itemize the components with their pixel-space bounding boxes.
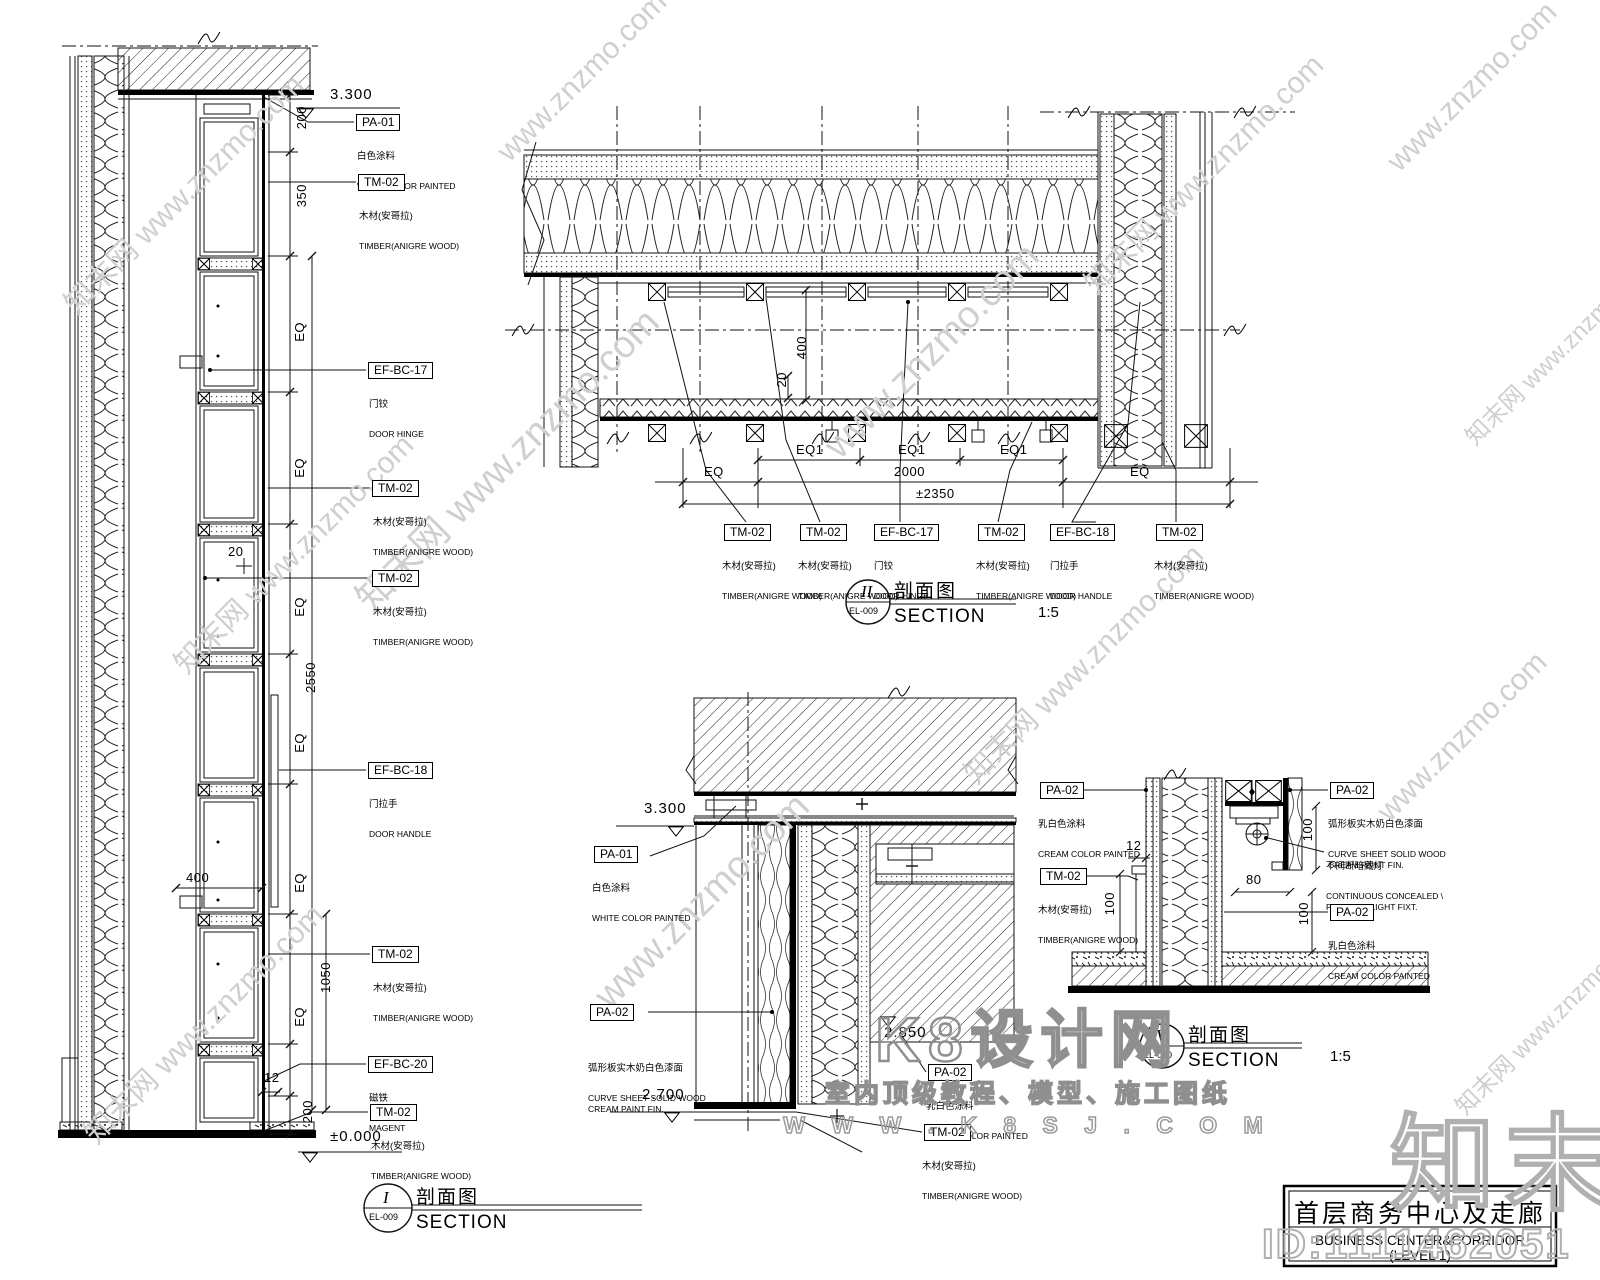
material-note-zh: 木材(安哥拉) <box>1154 562 1254 573</box>
watermark-k8-subtitle: 室内顶级教程、模型、施工图纸 <box>758 1074 1298 1110</box>
material-tag: TM-02 <box>800 524 847 541</box>
material-note-en: TIMBER(ANIGRE WOOD) <box>373 637 473 648</box>
material-note-zh: 门拉手 <box>369 800 431 811</box>
material-note-zh: 乳白色涂料 <box>1038 820 1140 831</box>
material-note-zh: 乳白色涂料 <box>1328 942 1430 953</box>
material-tag: EF-BC-17 <box>368 362 433 379</box>
material-note: 门拉手 DOOR HANDLE <box>369 782 431 858</box>
dim: EQ <box>704 464 724 479</box>
material-note: 门铰 DOOR HINGE <box>369 382 424 458</box>
material-note: 木材(安哥拉) TIMBER(ANIGRE WOOD) <box>1154 544 1254 620</box>
material-note-en: TIMBER(ANIGRE WOOD) <box>922 1191 1022 1202</box>
material-note: 门拉手 DOOR HANDLE <box>1050 544 1112 620</box>
section-title-cn: 剖面图 <box>894 576 957 603</box>
material-note-zh: 木材(安哥拉) <box>922 1162 1022 1173</box>
material-tag: TM-02 <box>358 174 405 191</box>
material-note-en: TIMBER(ANIGRE WOOD) <box>1154 591 1254 602</box>
material-note-en: DOOR HANDLE <box>369 829 431 840</box>
material-note-zh: 不间断暗藏灯 <box>1326 862 1443 873</box>
material-note-en: TIMBER(ANIGRE WOOD) <box>359 241 459 252</box>
watermark-zhimo: 知末 <box>1390 1080 1600 1232</box>
dim: 20 <box>774 372 789 387</box>
material-note: 木材(安哥拉) TIMBER(ANIGRE WOOD) <box>373 966 473 1042</box>
material-note: 木材(安哥拉) TIMBER(ANIGRE WOOD) <box>359 194 459 270</box>
material-tag: PA-02 <box>1330 782 1374 799</box>
watermark-k8-block: K8设计网 室内顶级教程、模型、施工图纸 W W W . K 8 S J . C… <box>758 1010 1298 1139</box>
section-sheet: EL-009 <box>849 606 878 616</box>
dim: EQ <box>292 458 307 478</box>
material-tag: PA-02 <box>1040 782 1084 799</box>
material-tag: EF-BC-17 <box>874 524 939 541</box>
dim: 100 <box>1300 818 1315 841</box>
material-note-en: DOOR HINGE <box>369 429 424 440</box>
material-tag: TM-02 <box>372 480 419 497</box>
section-title-en: SECTION <box>416 1212 507 1234</box>
dim: 2550 <box>303 662 318 693</box>
material-note-zh: 门拉手 <box>1050 562 1112 573</box>
material-note-en: TIMBER(ANIGRE WOOD) <box>371 1171 471 1182</box>
material-note-zh: 木材(安哥拉) <box>1038 906 1138 917</box>
dim: EQ <box>292 322 307 342</box>
watermark-id: ID:1111462051 <box>1262 1220 1571 1268</box>
material-note-en: TIMBER(ANIGRE WOOD) <box>1038 935 1138 946</box>
material-note-zh: 木材(安哥拉) <box>373 518 473 529</box>
section-number: II <box>861 582 872 602</box>
dim: 200 <box>294 106 309 129</box>
dim: 1050 <box>318 962 333 993</box>
material-note-zh: 木材(安哥拉) <box>359 212 459 223</box>
material-note-en: DOOR HANDLE <box>1050 591 1112 602</box>
level-mark: 3.300 <box>644 800 687 817</box>
material-note: 木材(安哥拉) TIMBER(ANIGRE WOOD) <box>373 590 473 666</box>
material-note-en: CURVE SHEET SOLID WOOD CREAM PAINT FIN. <box>588 1093 706 1114</box>
dim: 2000 <box>894 464 925 479</box>
material-note-zh: 白色涂料 <box>592 884 691 895</box>
dim: ±2350 <box>916 486 955 501</box>
material-tag: EF-BC-18 <box>1050 524 1115 541</box>
material-tag: PA-02 <box>1330 904 1374 921</box>
material-tag: TM-02 <box>1156 524 1203 541</box>
material-note: 木材(安哥拉) TIMBER(ANIGRE WOOD) <box>373 500 473 576</box>
material-tag: TM-02 <box>1040 868 1087 885</box>
watermark-k8-title: K8设计网 <box>758 1010 1298 1072</box>
section-scale: 1:5 <box>1038 604 1059 621</box>
material-tag: TM-02 <box>372 570 419 587</box>
cad-drawing-sheet: 知末网 www.znzmo.com www.znzmo.com 知末网 www.… <box>0 0 1600 1280</box>
material-tag: TM-02 <box>372 946 419 963</box>
dim: EQ <box>1130 464 1150 479</box>
dim: 20 <box>228 544 243 559</box>
material-note: 弧形板实木奶白色漆面 CURVE SHEET SOLID WOOD CREAM … <box>588 1046 706 1132</box>
material-note-en: WHITE COLOR PAINTED <box>592 913 691 924</box>
dim: 12 <box>264 1070 279 1085</box>
material-note: 木材(安哥拉) TIMBER(ANIGRE WOOD) <box>922 1144 1022 1220</box>
material-tag: PA-01 <box>594 846 638 863</box>
material-note: 木材(安哥拉) TIMBER(ANIGRE WOOD) <box>1038 888 1138 964</box>
material-note: 乳白色涂料 CREAM COLOR PAINTED <box>1038 802 1140 878</box>
dim: 400 <box>794 336 809 359</box>
material-tag: PA-01 <box>356 114 400 131</box>
section-scale: 1:5 <box>1330 1048 1351 1065</box>
dim: EQ <box>292 1007 307 1027</box>
material-tag: PA-02 <box>590 1004 634 1021</box>
dim: EQ <box>292 597 307 617</box>
material-note-zh: 门铰 <box>369 400 424 411</box>
dim: 400 <box>186 870 209 885</box>
section-title-en: SECTION <box>894 606 985 628</box>
material-note-zh: 木材(安哥拉) <box>371 1142 471 1153</box>
material-tag: EF-BC-18 <box>368 762 433 779</box>
dim: EQ <box>292 733 307 753</box>
material-note-en: CREAM COLOR PAINTED <box>1038 849 1140 860</box>
section-title-cn: 剖面图 <box>416 1182 479 1209</box>
dim: 80 <box>1246 872 1261 887</box>
material-note-zh: 弧形板实木奶白色漆面 <box>1328 820 1446 831</box>
material-tag: TM-02 <box>978 524 1025 541</box>
section-sheet: EL-009 <box>369 1212 398 1222</box>
material-note-en: TIMBER(ANIGRE WOOD) <box>373 1013 473 1024</box>
dim: 350 <box>294 184 309 207</box>
section-number: I <box>383 1188 389 1208</box>
material-note-en: TIMBER(ANIGRE WOOD) <box>373 547 473 558</box>
material-note: 白色涂料 WHITE COLOR PAINTED <box>592 866 691 942</box>
material-note-zh: 白色涂料 <box>357 152 456 163</box>
material-tag: TM-02 <box>370 1104 417 1121</box>
dim: EQ1 <box>796 442 824 457</box>
material-note-zh: 弧形板实木奶白色漆面 <box>588 1064 706 1075</box>
dim: EQ1 <box>1000 442 1028 457</box>
material-tag: EF-BC-20 <box>368 1056 433 1073</box>
material-tag: TM-02 <box>724 524 771 541</box>
watermark-k8-url: W W W . K 8 S J . C O M <box>758 1112 1298 1139</box>
material-note-zh: 门铰 <box>874 562 929 573</box>
dim: EQ <box>292 873 307 893</box>
material-note-en: CREAM COLOR PAINTED <box>1328 971 1430 982</box>
material-note-zh: 木材(安哥拉) <box>373 608 473 619</box>
dim: EQ1 <box>898 442 926 457</box>
material-note: 乳白色涂料 CREAM COLOR PAINTED <box>1328 924 1430 1000</box>
material-note-zh: 木材(安哥拉) <box>373 984 473 995</box>
dim: 200 <box>300 1100 315 1123</box>
dim: 100 <box>1296 902 1311 925</box>
level-mark: 3.300 <box>330 86 373 103</box>
